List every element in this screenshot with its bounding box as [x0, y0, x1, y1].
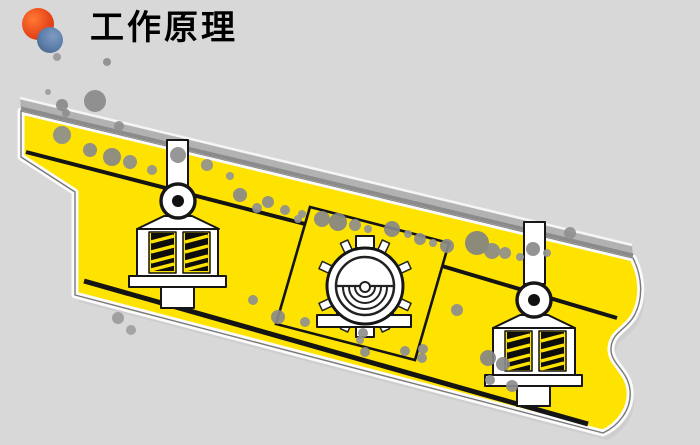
left-support-pivot-dot [172, 195, 184, 207]
left-spring-coil-1 [149, 232, 176, 273]
material-particle [451, 304, 463, 316]
material-particle [83, 143, 97, 157]
material-particle [506, 380, 518, 392]
material-particle [543, 249, 551, 257]
material-particle [84, 90, 106, 112]
material-particle [417, 353, 427, 363]
page-title: 工作原理 [90, 8, 238, 49]
material-particle [262, 196, 274, 208]
material-particle [112, 312, 124, 324]
material-particle [147, 165, 157, 175]
material-particle [300, 317, 310, 327]
material-particle [485, 375, 495, 385]
material-particle [564, 227, 576, 239]
right-spring-coil-2 [539, 331, 566, 371]
page: { "header": { "title": "工作原理" }, "logo":… [0, 0, 700, 445]
material-particle [62, 109, 70, 117]
material-particle [496, 357, 510, 371]
left-spring-coil-2 [183, 232, 210, 273]
material-particle [356, 336, 364, 344]
material-particle [404, 230, 412, 238]
material-particle [414, 233, 426, 245]
material-particle [252, 203, 262, 213]
material-particle [45, 89, 51, 95]
material-particle [53, 126, 71, 144]
material-particle [480, 350, 496, 366]
material-particle [349, 219, 361, 231]
material-particle [170, 147, 186, 163]
vibrator-shaft [360, 282, 370, 292]
material-particle [499, 247, 511, 259]
material-particle [484, 243, 500, 259]
material-particle [314, 211, 330, 227]
left-support-foot [161, 287, 194, 308]
right-support-base-plate [485, 375, 582, 386]
right-support-foot [517, 386, 550, 406]
material-particle [123, 155, 137, 169]
header: 工作原理 [0, 0, 700, 70]
material-particle [114, 121, 124, 131]
material-particle [526, 242, 540, 256]
left-support-base-plate [129, 276, 226, 287]
material-particle [294, 215, 302, 223]
right-support-pivot-dot [528, 294, 540, 306]
logo-blue-circle-icon [37, 27, 63, 53]
material-particle [280, 205, 290, 215]
material-particle [201, 159, 213, 171]
material-particle [418, 344, 428, 354]
material-particle [384, 221, 400, 237]
material-particle [516, 253, 524, 261]
material-particle [329, 213, 347, 231]
material-particle [440, 239, 454, 253]
material-particle [400, 346, 410, 356]
logo [20, 6, 70, 58]
material-particle [248, 295, 258, 305]
material-particle [126, 325, 136, 335]
material-particle [271, 310, 285, 324]
material-particle [364, 225, 372, 233]
material-particle [360, 347, 370, 357]
material-particle [103, 148, 121, 166]
vibrator-top-tab [356, 236, 374, 248]
material-particle [233, 188, 247, 202]
material-particle [429, 239, 437, 247]
material-particle [226, 172, 234, 180]
